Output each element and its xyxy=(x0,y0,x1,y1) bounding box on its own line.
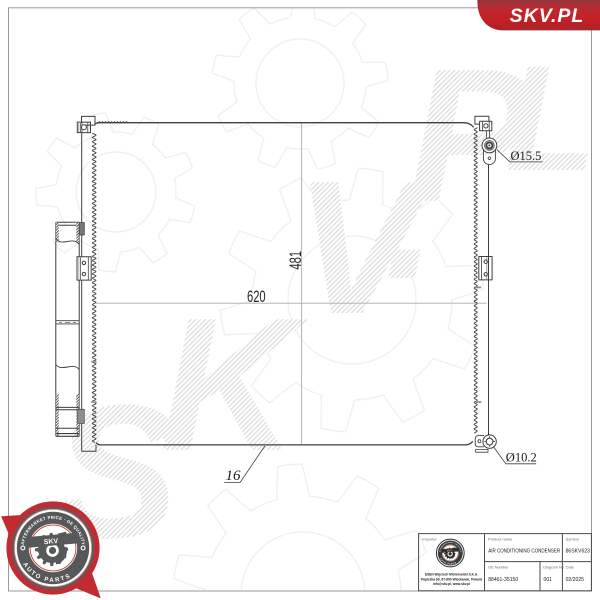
svg-text:Papieżka 69, 87-800 Włocławek,: Papieżka 69, 87-800 Włocławek, Poland xyxy=(421,577,482,581)
svg-text:OE Number: OE Number xyxy=(488,565,509,570)
svg-text:K: K xyxy=(160,279,309,491)
svg-text:88461-35150: 88461-35150 xyxy=(488,577,518,583)
svg-text:Importer: Importer xyxy=(422,537,437,542)
svg-text:86SKV623: 86SKV623 xyxy=(566,549,591,555)
svg-text:481: 481 xyxy=(286,251,305,270)
svg-text:Diagram No: Diagram No xyxy=(543,565,564,570)
svg-text:SKV.PL: SKV.PL xyxy=(510,5,585,27)
svg-text:001: 001 xyxy=(544,577,553,583)
svg-text:AIR CONDITIONING CONDENSER: AIR CONDITIONING CONDENSER xyxy=(488,549,560,555)
svg-text:Product name: Product name xyxy=(488,537,512,542)
svg-text:SKV: SKV xyxy=(44,538,59,546)
svg-text:info@skv.pl, www.skv.pl: info@skv.pl, www.skv.pl xyxy=(433,582,470,586)
svg-text:620: 620 xyxy=(247,287,266,306)
svg-text:Symbol: Symbol xyxy=(566,537,579,542)
svg-text:ESEN Wojciech Michniewski S.K.: ESEN Wojciech Michniewski S.K.A. xyxy=(425,573,478,577)
svg-text:02/2025: 02/2025 xyxy=(566,577,585,583)
svg-text:Ø10.2: Ø10.2 xyxy=(506,451,537,465)
svg-text:Date: Date xyxy=(566,565,574,570)
svg-text:16: 16 xyxy=(226,468,242,484)
svg-text:L: L xyxy=(505,34,597,202)
svg-text:Ø15.5: Ø15.5 xyxy=(511,149,542,163)
